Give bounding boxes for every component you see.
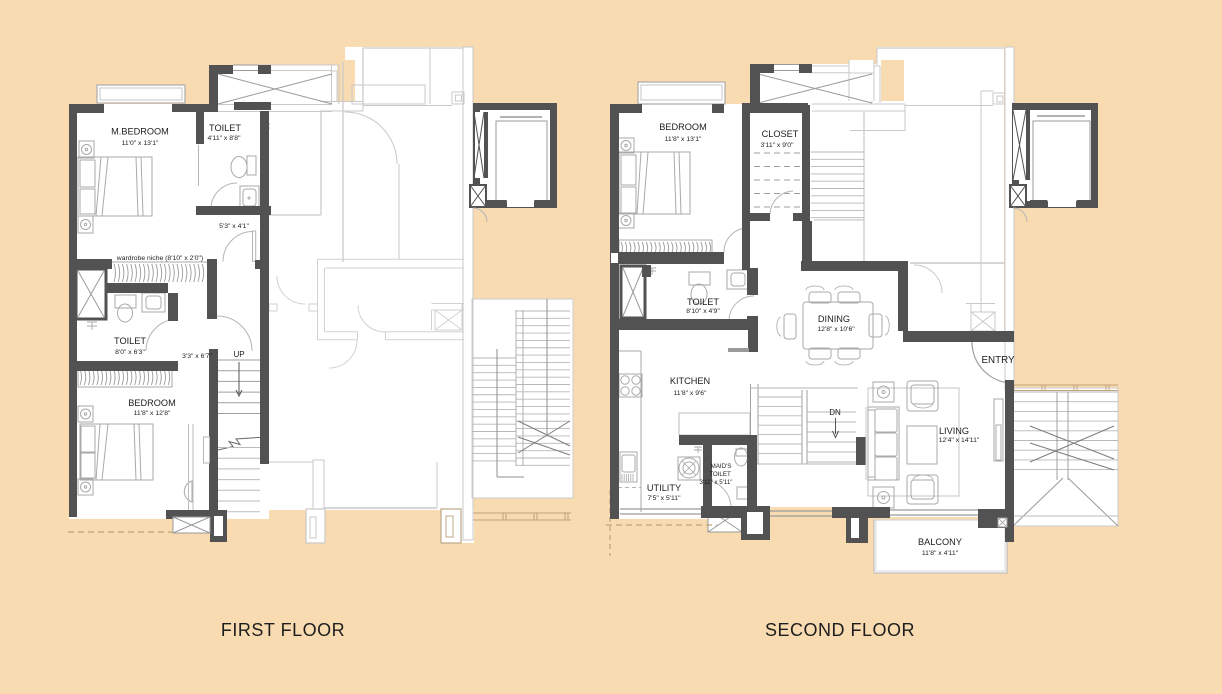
svg-text:3'11" x 5'11": 3'11" x 5'11": [699, 479, 732, 486]
svg-text:5'3" x 4'1": 5'3" x 4'1": [219, 223, 249, 230]
svg-text:M.BEDROOM: M.BEDROOM: [111, 127, 169, 137]
svg-text:SECOND FLOOR: SECOND FLOOR: [765, 620, 915, 640]
svg-text:TOILET: TOILET: [114, 336, 146, 346]
svg-text:11'8" x 13'1": 11'8" x 13'1": [665, 136, 702, 143]
svg-text:CLOSET: CLOSET: [762, 129, 799, 139]
svg-text:BEDROOM: BEDROOM: [128, 398, 175, 408]
svg-text:DINING: DINING: [818, 314, 850, 324]
svg-text:UP: UP: [233, 350, 244, 359]
svg-text:8'10" x 4'9": 8'10" x 4'9": [686, 308, 720, 315]
svg-text:MAID'S: MAID'S: [711, 463, 732, 470]
svg-text:UTILITY: UTILITY: [647, 483, 681, 493]
svg-text:FIRST FLOOR: FIRST FLOOR: [221, 620, 345, 640]
svg-text:3'3" x 6'7": 3'3" x 6'7": [182, 353, 212, 360]
svg-text:ENTRY: ENTRY: [981, 355, 1014, 366]
svg-text:11'8" x 12'8": 11'8" x 12'8": [134, 410, 171, 417]
svg-text:KITCHEN: KITCHEN: [670, 376, 710, 386]
svg-text:8'0" x 6'3": 8'0" x 6'3": [115, 349, 145, 356]
svg-text:TOILET: TOILET: [687, 297, 719, 307]
svg-text:4'11" x 8'8": 4'11" x 8'8": [208, 135, 242, 142]
svg-text:12'4" x 14'11": 12'4" x 14'11": [939, 437, 980, 444]
svg-text:11'8" x 9'6": 11'8" x 9'6": [674, 390, 708, 397]
svg-text:LIVING: LIVING: [939, 426, 969, 436]
svg-text:12'8" x 10'6": 12'8" x 10'6": [817, 326, 855, 333]
svg-text:BALCONY: BALCONY: [918, 537, 962, 547]
svg-text:11'8" x 4'11": 11'8" x 4'11": [922, 550, 959, 557]
svg-text:DN: DN: [829, 408, 841, 417]
svg-text:11'0" x 13'1": 11'0" x 13'1": [122, 140, 159, 147]
svg-text:wardrobe niche (8'10" x 2'0"): wardrobe niche (8'10" x 2'0"): [116, 255, 203, 262]
svg-text:BEDROOM: BEDROOM: [659, 122, 706, 132]
svg-text:TOILET: TOILET: [209, 123, 241, 133]
svg-text:3'11" x 9'0": 3'11" x 9'0": [761, 142, 795, 149]
svg-text:7'5" x 5'11": 7'5" x 5'11": [648, 495, 682, 502]
svg-text:TOILET: TOILET: [709, 471, 731, 478]
